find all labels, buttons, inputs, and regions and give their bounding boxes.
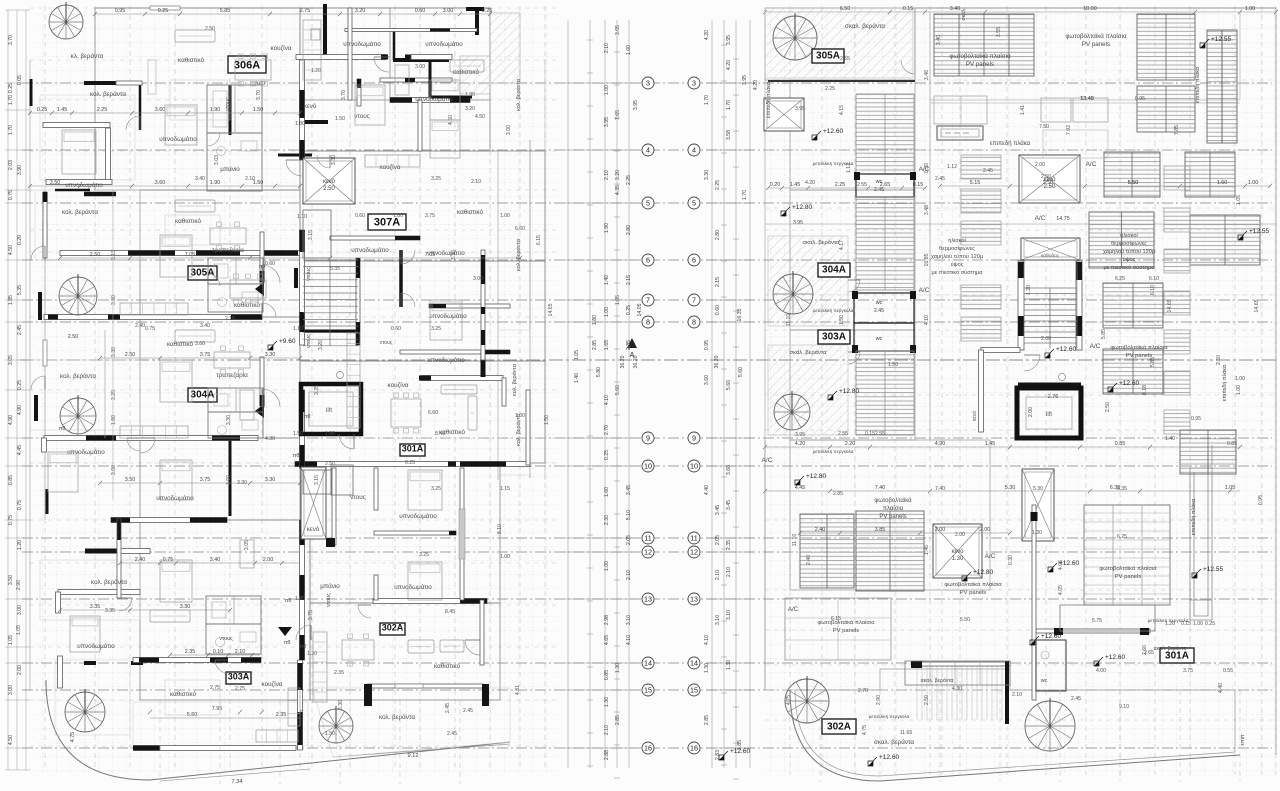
svg-text:4: 4: [692, 146, 696, 155]
svg-text:PV panels: PV panels: [879, 514, 906, 520]
svg-text:11.10: 11.10: [792, 534, 798, 547]
svg-text:3.25: 3.25: [111, 390, 117, 400]
svg-text:3.25: 3.25: [431, 176, 441, 182]
svg-text:2.50: 2.50: [1216, 355, 1222, 365]
svg-text:8.18: 8.18: [1142, 385, 1148, 395]
svg-text:κενό: κενό: [971, 411, 978, 422]
svg-text:3.50: 3.50: [125, 477, 136, 483]
svg-text:+12.60: +12.60: [1105, 654, 1125, 661]
svg-text:πθ: πθ: [300, 644, 307, 650]
svg-text:1.50: 1.50: [888, 362, 898, 368]
svg-text:4.17: 4.17: [839, 240, 845, 250]
svg-text:2.25: 2.25: [97, 107, 108, 113]
svg-text:2.10: 2.10: [726, 567, 732, 577]
svg-text:5.50: 5.50: [960, 617, 970, 623]
svg-text:16.35: 16.35: [737, 308, 743, 321]
svg-text:0.75: 0.75: [145, 326, 155, 332]
svg-text:wc: wc: [875, 336, 883, 342]
svg-text:1.10: 1.10: [297, 214, 307, 220]
svg-text:2.10: 2.10: [715, 570, 721, 580]
svg-text:11: 11: [644, 534, 651, 543]
svg-text:5.15: 5.15: [970, 180, 981, 186]
svg-text:0.20: 0.20: [17, 235, 23, 245]
svg-text:2.03: 2.03: [8, 160, 14, 170]
svg-text:0.25: 0.25: [17, 380, 23, 390]
svg-text:14.65: 14.65: [1254, 299, 1260, 312]
svg-text:ύψος: ύψος: [1123, 257, 1136, 263]
svg-text:1.90: 1.90: [465, 92, 475, 98]
svg-text:+12.55: +12.55: [1211, 36, 1231, 43]
svg-text:7.92: 7.92: [1066, 125, 1072, 135]
svg-text:0.25: 0.25: [626, 305, 632, 315]
svg-text:κενό: κενό: [323, 178, 336, 185]
svg-text:6.60: 6.60: [428, 410, 438, 416]
svg-text:1.45: 1.45: [57, 107, 68, 113]
svg-text:4.20: 4.20: [753, 80, 759, 90]
svg-text:ντους: ντους: [306, 334, 312, 348]
svg-text:2.45: 2.45: [874, 308, 884, 314]
svg-text:3.75: 3.75: [1183, 668, 1193, 674]
svg-text:36.20: 36.20: [714, 355, 720, 368]
svg-text:5.85: 5.85: [220, 8, 231, 14]
svg-text:0.60: 0.60: [265, 261, 275, 267]
svg-text:3.30: 3.30: [180, 604, 191, 610]
svg-text:1.85: 1.85: [8, 295, 14, 305]
svg-text:0.25: 0.25: [158, 8, 169, 14]
svg-text:1.05: 1.05: [615, 295, 621, 305]
svg-text:3.30: 3.30: [265, 352, 276, 358]
svg-text:3.25: 3.25: [419, 552, 429, 558]
svg-text:5.85: 5.85: [1150, 357, 1156, 367]
svg-text:2.05: 2.05: [715, 535, 721, 545]
svg-text:302A: 302A: [827, 722, 851, 733]
svg-text:2.88: 2.88: [604, 750, 610, 760]
svg-text:4.40: 4.40: [1218, 683, 1224, 693]
svg-text:3.90: 3.90: [17, 165, 23, 175]
svg-text:3.60: 3.60: [155, 107, 166, 113]
svg-text:2.45: 2.45: [983, 168, 993, 174]
svg-text:302A: 302A: [382, 623, 404, 633]
svg-text:κολ. βεράντα: κολ. βεράντα: [511, 363, 518, 396]
svg-text:υπνοδωμάτιο: υπνοδωμάτιο: [425, 40, 463, 48]
svg-text:4.40: 4.40: [704, 485, 710, 495]
svg-text:0.95: 0.95: [1135, 96, 1145, 102]
svg-text:κουζίνα: κουζίνα: [388, 381, 409, 389]
svg-text:2.40: 2.40: [806, 555, 812, 565]
svg-text:υπνοδωμάτιο: υπνοδωμάτιο: [77, 642, 115, 650]
svg-text:7.40: 7.40: [935, 486, 945, 492]
svg-text:A/C: A/C: [1090, 343, 1101, 350]
svg-text:3.45: 3.45: [626, 485, 632, 495]
svg-text:4.90: 4.90: [8, 415, 14, 425]
svg-text:1.70: 1.70: [742, 190, 748, 200]
svg-text:1.20: 1.20: [17, 540, 23, 550]
svg-text:6: 6: [646, 256, 650, 265]
svg-text:1.40: 1.40: [574, 373, 580, 383]
svg-text:304A: 304A: [191, 390, 215, 401]
svg-text:2.35: 2.35: [726, 540, 732, 550]
svg-text:6.50: 6.50: [840, 6, 851, 12]
svg-text:0.25: 0.25: [37, 107, 48, 113]
svg-text:4.90: 4.90: [935, 441, 946, 447]
svg-text:3.40: 3.40: [195, 176, 205, 182]
svg-text:6.10: 6.10: [1150, 285, 1156, 295]
svg-text:9.10: 9.10: [1119, 704, 1129, 710]
svg-text:11.65: 11.65: [900, 730, 913, 736]
svg-text:3.35: 3.35: [90, 604, 101, 610]
svg-text:κλ. βεράντα: κλ. βεράντα: [71, 52, 104, 60]
svg-text:1.45: 1.45: [790, 182, 801, 188]
svg-text:1.50: 1.50: [839, 315, 845, 325]
svg-text:2.35: 2.35: [276, 712, 287, 718]
svg-text:PV panels: PV panels: [966, 61, 994, 68]
svg-text:6.25: 6.25: [1115, 276, 1125, 282]
svg-text:3.00: 3.00: [415, 64, 425, 70]
svg-text:5.80: 5.80: [596, 367, 602, 377]
svg-text:1.00: 1.00: [1245, 6, 1256, 12]
svg-text:2.00: 2.00: [1035, 162, 1045, 168]
svg-text:5.30: 5.30: [1033, 486, 1043, 492]
svg-text:1.05: 1.05: [574, 350, 580, 360]
svg-text:2.50: 2.50: [924, 695, 930, 705]
svg-text:1.45: 1.45: [985, 441, 996, 447]
svg-text:2.50: 2.50: [68, 334, 79, 340]
svg-text:3.50: 3.50: [50, 180, 61, 186]
svg-text:4.10: 4.10: [604, 395, 610, 405]
svg-text:3.05: 3.05: [8, 355, 14, 365]
svg-text:καθιστικό: καθιστικό: [178, 56, 204, 64]
svg-text:PV panels: PV panels: [1115, 574, 1142, 580]
svg-text:3.25: 3.25: [431, 326, 441, 332]
svg-text:υπνοδωμάτιο: υπνοδωμάτιο: [65, 181, 103, 189]
svg-text:1.00: 1.00: [515, 413, 525, 419]
svg-text:υπνοδωμάτιο: υπνοδωμάτιο: [415, 95, 453, 103]
svg-text:4.20: 4.20: [726, 60, 732, 70]
svg-text:1.90: 1.90: [604, 223, 610, 233]
svg-text:2.50: 2.50: [205, 26, 215, 32]
svg-text:2.98: 2.98: [604, 615, 610, 625]
svg-text:2.50: 2.50: [323, 186, 335, 192]
svg-text:φωτοβολταϊκά: φωτοβολταϊκά: [874, 497, 912, 504]
svg-text:4.31: 4.31: [515, 685, 521, 695]
svg-text:2.70: 2.70: [604, 425, 610, 435]
svg-text:5.85: 5.85: [1101, 329, 1107, 339]
svg-text:4.75: 4.75: [862, 725, 868, 735]
svg-text:2.10: 2.10: [245, 176, 255, 182]
svg-text:A/C: A/C: [985, 553, 996, 560]
svg-text:2.05: 2.05: [626, 535, 632, 545]
svg-text:4.30: 4.30: [265, 436, 275, 442]
svg-text:3.75: 3.75: [200, 477, 211, 483]
svg-text:πθ: πθ: [59, 426, 66, 432]
svg-text:+12.55: +12.55: [1249, 228, 1269, 235]
svg-text:PV panels: PV panels: [1126, 353, 1153, 359]
svg-text:1.30: 1.30: [726, 660, 732, 670]
svg-text:PV panels: PV panels: [1082, 41, 1110, 48]
svg-text:8.45: 8.45: [445, 609, 455, 615]
svg-text:3.40: 3.40: [950, 6, 961, 12]
svg-text:3.05: 3.05: [244, 540, 250, 550]
svg-text:2.90: 2.90: [876, 695, 882, 705]
svg-text:2.10: 2.10: [1012, 692, 1022, 698]
svg-text:2.00: 2.00: [935, 527, 946, 533]
svg-text:κενό: κενό: [307, 525, 320, 533]
svg-text:3.50: 3.50: [8, 575, 14, 585]
svg-text:2.50: 2.50: [125, 352, 136, 358]
svg-text:1.60: 1.60: [604, 487, 610, 497]
svg-text:4.00: 4.00: [1096, 668, 1106, 674]
svg-text:1.80: 1.80: [592, 315, 598, 325]
svg-text:2.25: 2.25: [626, 175, 632, 185]
svg-text:κολ. βεράντα: κολ. βεράντα: [60, 372, 96, 380]
svg-text:2.15: 2.15: [715, 277, 721, 287]
svg-text:3.55: 3.55: [996, 27, 1002, 37]
svg-text:4.10: 4.10: [924, 315, 930, 325]
svg-text:0.20: 0.20: [770, 182, 781, 188]
svg-text:2.75: 2.75: [210, 685, 220, 691]
svg-text:3.15: 3.15: [308, 230, 314, 240]
svg-text:7.95: 7.95: [212, 706, 223, 712]
svg-text:3.03: 3.03: [214, 155, 220, 165]
svg-text:ακαλ. βεράντα: ακαλ. βεράντα: [921, 677, 954, 684]
svg-text:1.00: 1.00: [604, 85, 610, 95]
svg-text:15: 15: [690, 686, 698, 695]
svg-text:0.15: 0.15: [903, 6, 914, 12]
svg-text:0.85: 0.85: [1115, 441, 1126, 447]
svg-text:306A: 306A: [234, 60, 260, 72]
svg-text:3.25: 3.25: [314, 385, 320, 395]
svg-text:4.45: 4.45: [795, 485, 806, 491]
svg-text:κάθοδος: κάθοδος: [1041, 252, 1060, 259]
svg-text:2.45: 2.45: [463, 708, 473, 714]
svg-text:301A: 301A: [402, 444, 424, 454]
svg-text:5.35: 5.35: [17, 285, 23, 295]
svg-text:305A: 305A: [816, 51, 840, 62]
svg-text:2.45: 2.45: [447, 731, 457, 737]
svg-text:1.05: 1.05: [1225, 485, 1236, 491]
svg-text:A/C: A/C: [1035, 215, 1046, 222]
svg-text:+12.80: +12.80: [973, 569, 993, 576]
svg-text:4.45: 4.45: [17, 445, 23, 455]
svg-text:3.15: 3.15: [314, 475, 320, 485]
svg-text:6.10: 6.10: [1149, 276, 1159, 282]
svg-text:4.35: 4.35: [615, 185, 621, 195]
svg-text:ακαλ. βεράντα: ακαλ. βεράντα: [1154, 645, 1187, 652]
svg-text:6.15: 6.15: [536, 235, 542, 245]
svg-text:4.75: 4.75: [786, 695, 792, 705]
svg-text:3.60: 3.60: [726, 465, 732, 475]
svg-text:0.95: 0.95: [1191, 416, 1201, 422]
svg-text:2.00: 2.00: [980, 527, 991, 533]
svg-text:3.85: 3.85: [875, 527, 886, 533]
svg-text:ηλιακοί: ηλιακοί: [1120, 233, 1138, 239]
svg-text:1.50: 1.50: [325, 431, 335, 437]
svg-text:4.20: 4.20: [704, 30, 710, 40]
svg-text:0.95: 0.95: [1258, 495, 1264, 505]
svg-text:1.20: 1.20: [1026, 285, 1032, 295]
svg-text:φωτοβολταϊκά πλαίσια: φωτοβολταϊκά πλαίσια: [1065, 33, 1127, 40]
svg-text:2.15: 2.15: [626, 275, 632, 285]
svg-text:ντους: ντους: [326, 593, 332, 607]
svg-text:2.75: 2.75: [235, 686, 245, 692]
svg-text:πθ: πθ: [284, 640, 291, 646]
svg-text:κενό: κενό: [304, 102, 317, 110]
svg-text:4.20: 4.20: [805, 180, 815, 186]
svg-text:14.65: 14.65: [548, 303, 554, 316]
svg-text:μεταλλικη περγκολα: μεταλλικη περγκολα: [869, 714, 910, 719]
svg-text:16.85: 16.85: [924, 253, 930, 266]
svg-text:13: 13: [644, 595, 652, 604]
svg-text:3.60: 3.60: [155, 180, 166, 186]
svg-text:0.55: 0.55: [1223, 668, 1233, 674]
svg-text:4.10: 4.10: [626, 635, 632, 645]
svg-text:3.70: 3.70: [8, 35, 14, 45]
svg-text:1.50: 1.50: [325, 731, 335, 737]
svg-text:lift: lift: [326, 408, 332, 414]
svg-text:4.30: 4.30: [952, 686, 962, 692]
svg-text:1.40: 1.40: [604, 275, 610, 285]
svg-text:0.25: 0.25: [604, 450, 610, 460]
svg-text:7.50: 7.50: [1039, 124, 1049, 130]
svg-text:10.00: 10.00: [1083, 6, 1097, 12]
svg-text:σκαλ. βεράντα: σκαλ. βεράντα: [790, 349, 828, 356]
svg-text:0.30: 0.30: [1008, 555, 1014, 565]
svg-text:303A: 303A: [822, 332, 846, 343]
svg-text:4.05: 4.05: [1058, 560, 1064, 570]
svg-text:0.95: 0.95: [704, 340, 710, 350]
svg-text:2.76: 2.76: [1048, 394, 1059, 400]
svg-text:καθιστικό: καθιστικό: [167, 340, 193, 348]
svg-text:υπνοδωμάτιο: υπνοδωμάτιο: [399, 512, 437, 520]
svg-text:1.65: 1.65: [604, 340, 610, 350]
svg-text:4.10: 4.10: [704, 635, 710, 645]
svg-text:5.75: 5.75: [1092, 618, 1102, 624]
svg-text:0.60: 0.60: [355, 213, 365, 219]
svg-text:3.45: 3.45: [715, 505, 721, 515]
svg-text:0.95: 0.95: [115, 8, 126, 14]
svg-text:3.95: 3.95: [742, 75, 748, 85]
svg-text:1.00: 1.00: [500, 554, 510, 560]
svg-text:+12.80: +12.80: [792, 204, 812, 211]
svg-text:304A: 304A: [822, 265, 846, 276]
svg-text:9: 9: [646, 434, 650, 443]
svg-text:1.00: 1.00: [1193, 621, 1203, 627]
svg-text:+12.60: +12.60: [879, 754, 899, 761]
svg-text:3.30: 3.30: [265, 477, 276, 483]
svg-text:μπάνιο: μπάνιο: [220, 165, 240, 173]
svg-text:3.30: 3.30: [331, 155, 337, 165]
svg-text:8.10: 8.10: [497, 524, 503, 534]
svg-text:1.60: 1.60: [1217, 180, 1228, 186]
svg-text:0.25: 0.25: [405, 460, 415, 466]
svg-text:5.60: 5.60: [615, 385, 621, 395]
svg-text:1.90: 1.90: [210, 107, 221, 113]
svg-text:κολ. βεράντα: κολ. βεράντα: [91, 578, 127, 586]
svg-text:επιπεδή πλάκα: επιπεδή πλάκα: [990, 140, 1031, 147]
svg-text:4.65: 4.65: [604, 635, 610, 645]
svg-text:2.10: 2.10: [604, 170, 610, 180]
svg-text:ύψος: ύψος: [951, 262, 964, 268]
svg-text:7.85: 7.85: [1174, 125, 1180, 135]
svg-text:15: 15: [644, 686, 652, 695]
svg-text:+12.80: +12.80: [839, 388, 859, 395]
svg-text:0.15: 0.15: [1181, 621, 1191, 627]
svg-text:2.55: 2.55: [840, 56, 850, 62]
svg-text:επιπ: επιπ: [1240, 734, 1246, 745]
svg-text:3.30: 3.30: [237, 480, 247, 486]
svg-text:2.85: 2.85: [615, 715, 621, 725]
svg-text:καθιστικό: καθιστικό: [175, 217, 201, 225]
svg-text:2.50: 2.50: [1041, 174, 1051, 180]
svg-text:ηλιακοί: ηλιακοί: [948, 238, 966, 244]
svg-text:2.90: 2.90: [16, 580, 22, 590]
svg-text:0.25: 0.25: [1205, 621, 1215, 627]
svg-text:3.60: 3.60: [704, 375, 710, 385]
svg-text:3.25: 3.25: [431, 486, 441, 492]
svg-text:10: 10: [690, 462, 698, 471]
svg-text:2.00: 2.00: [263, 557, 274, 563]
svg-text:301A: 301A: [1165, 651, 1189, 662]
svg-text:επιπεδή πλάκα: επιπεδή πλάκα: [1221, 365, 1228, 401]
svg-text:2.85: 2.85: [833, 491, 843, 497]
svg-text:2.00: 2.00: [1041, 336, 1051, 342]
svg-text:3.10: 3.10: [715, 615, 721, 625]
svg-text:+9.60: +9.60: [279, 338, 296, 345]
svg-text:καθιστικό: καθιστικό: [434, 662, 460, 670]
svg-text:επιπεδή πλάκα: επιπεδή πλάκα: [1194, 67, 1201, 103]
svg-text:3.95: 3.95: [795, 432, 805, 438]
svg-text:A/C: A/C: [762, 457, 773, 464]
svg-text:2.10: 2.10: [471, 179, 481, 185]
svg-text:3.10: 3.10: [726, 610, 732, 620]
svg-text:1.30: 1.30: [604, 697, 610, 707]
svg-text:3.35: 3.35: [105, 608, 115, 614]
svg-text:2.50: 2.50: [1043, 180, 1054, 186]
svg-text:5.30: 5.30: [1005, 485, 1016, 491]
svg-text:+12.60: +12.60: [1119, 380, 1139, 387]
svg-text:3.20: 3.20: [355, 8, 366, 14]
svg-text:7.05: 7.05: [185, 252, 196, 258]
svg-text:σκαλ.: σκαλ.: [961, 7, 967, 20]
svg-text:2.45: 2.45: [1071, 696, 1081, 702]
svg-text:3.30: 3.30: [226, 415, 232, 425]
svg-text:1.12: 1.12: [947, 164, 957, 170]
svg-text:3.45: 3.45: [726, 500, 732, 510]
svg-text:1.80: 1.80: [393, 213, 403, 219]
svg-text:10: 10: [644, 462, 652, 471]
svg-text:2.15: 2.15: [225, 316, 235, 322]
svg-text:2.25: 2.25: [715, 180, 721, 190]
svg-text:3.00: 3.00: [226, 475, 232, 485]
svg-text:2.00: 2.00: [955, 532, 965, 538]
svg-text:6.15: 6.15: [831, 616, 841, 622]
svg-text:υπνοδωμάτιο: υπνοδωμάτιο: [427, 356, 465, 364]
svg-text:2.55: 2.55: [875, 431, 885, 437]
svg-text:3.30: 3.30: [451, 250, 457, 260]
svg-text:1.90: 1.90: [210, 180, 221, 186]
svg-text:1.50: 1.50: [544, 415, 550, 425]
svg-text:2.45: 2.45: [935, 176, 945, 182]
svg-text:2.25: 2.25: [835, 182, 846, 188]
svg-text:κουζίνα: κουζίνα: [271, 44, 292, 52]
svg-text:2.10: 2.10: [604, 43, 610, 53]
svg-text:φωτοβολταϊκά πλαίσια: φωτοβολταϊκά πλαίσια: [949, 53, 1011, 60]
svg-text:4.50: 4.50: [8, 735, 14, 745]
svg-text:2.20: 2.20: [845, 441, 856, 447]
svg-text:7.65: 7.65: [615, 110, 621, 120]
svg-text:1.50: 1.50: [293, 431, 303, 437]
svg-text:4.15: 4.15: [839, 105, 845, 115]
